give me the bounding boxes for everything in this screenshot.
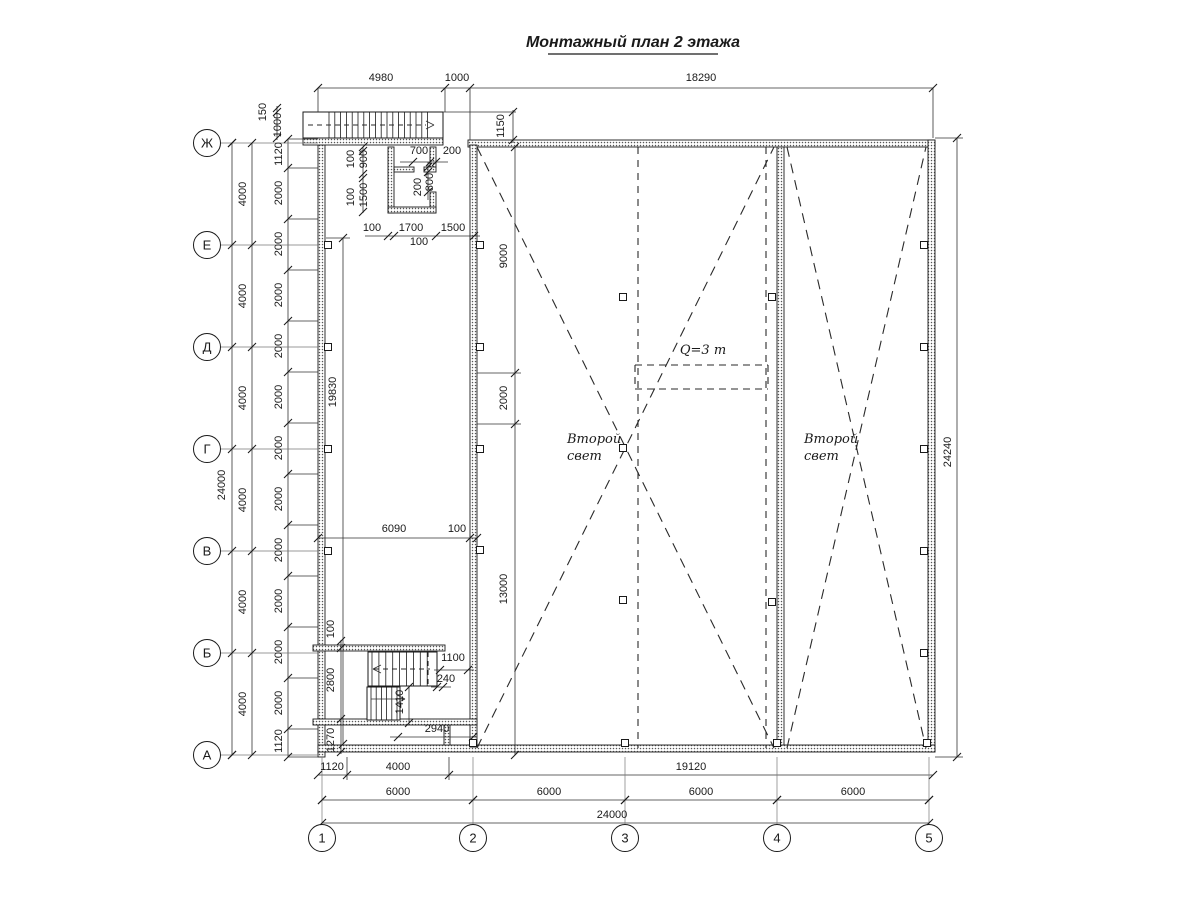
dimension-label: 6000 xyxy=(841,786,865,798)
dimension-label: 2000 xyxy=(273,283,285,307)
dimension-label: 2000 xyxy=(273,181,285,205)
dimension-label: 1500 xyxy=(441,222,465,234)
dimension-label: 6000 xyxy=(689,786,713,798)
dimension-label: 800 xyxy=(424,173,436,191)
column-marker xyxy=(477,242,484,249)
dimension-label: 1270 xyxy=(325,728,337,752)
dimension-label: 24000 xyxy=(597,809,628,821)
wall xyxy=(303,138,443,145)
axis-bubble-row-label: Б xyxy=(203,646,212,661)
column-marker xyxy=(921,344,928,351)
column-marker xyxy=(477,344,484,351)
axis-bubble-row-label: Д xyxy=(203,340,212,355)
column-marker xyxy=(470,740,477,747)
text-layer: 4980100018290150100011502400040004000400… xyxy=(216,34,954,821)
dimension-label: 1700 xyxy=(399,222,423,234)
dimension-label: 1000 xyxy=(272,113,284,137)
dimension-label: 240 xyxy=(437,673,455,685)
column-marker xyxy=(325,344,332,351)
dimension-label: 6000 xyxy=(386,786,410,798)
dimension-label: 2000 xyxy=(273,691,285,715)
axis-bubbles: ЖЕДГВБА12345 xyxy=(194,130,943,852)
column-marker xyxy=(924,740,931,747)
dimension-label: 2000 xyxy=(273,640,285,664)
column-marker xyxy=(325,548,332,555)
wall xyxy=(318,140,325,757)
dimension-label: 18290 xyxy=(686,72,717,84)
wall xyxy=(470,145,477,747)
dimension-label: 1410 xyxy=(394,690,406,714)
axis-bubble-row-label: Ж xyxy=(201,136,213,151)
column-marker xyxy=(769,599,776,606)
dimension-label: 1100 xyxy=(441,652,465,664)
plan-canvas: ЖЕДГВБА12345 498010001829015010001150240… xyxy=(0,0,1200,900)
wall xyxy=(313,645,445,651)
column-marker xyxy=(774,740,781,747)
dimension-label: 4000 xyxy=(386,761,410,773)
dimension-label: 4000 xyxy=(237,284,249,308)
dimension-label: 2800 xyxy=(325,668,337,692)
dimension-label: 2000 xyxy=(273,538,285,562)
column-marker xyxy=(477,547,484,554)
dimension-label: 19120 xyxy=(676,761,707,773)
dimension-label: 2000 xyxy=(273,334,285,358)
dimension-label: 100 xyxy=(448,523,466,535)
dimension-label: 1000 xyxy=(445,72,469,84)
dimension-label: 4000 xyxy=(237,590,249,614)
axis-bubble-row-label: В xyxy=(203,544,212,559)
dimension-label: 100 xyxy=(345,188,357,206)
dimension-label: 100 xyxy=(410,236,428,248)
wall xyxy=(928,140,935,752)
dimension-label: 6090 xyxy=(382,523,406,535)
column-marker xyxy=(477,446,484,453)
wall xyxy=(394,167,414,172)
axis-bubble-col-label: 1 xyxy=(318,831,325,846)
dimension-label: 1120 xyxy=(273,142,285,166)
axis-bubble-row-label: А xyxy=(203,748,212,763)
column-marker xyxy=(921,446,928,453)
column-marker xyxy=(325,446,332,453)
column-marker xyxy=(921,548,928,555)
axis-bubble-col-label: 2 xyxy=(469,831,476,846)
dimension-label: 9000 xyxy=(498,244,510,268)
axis-bubble-row-label: Е xyxy=(203,238,212,253)
dimension-label: 24000 xyxy=(216,470,228,501)
page-title: Монтажный план 2 этажа xyxy=(526,34,740,51)
dimension-label: 19830 xyxy=(327,377,339,408)
dimension-label: 13000 xyxy=(498,574,510,605)
dimension-label: 100 xyxy=(363,222,381,234)
axis-bubble-row-label: Г xyxy=(203,442,210,457)
column-marker xyxy=(620,597,627,604)
annotation-second-light: Второй xyxy=(566,432,621,447)
axis-bubble-col-label: 4 xyxy=(773,831,780,846)
dimension-label: 2000 xyxy=(273,589,285,613)
dimension-label: 4980 xyxy=(369,72,393,84)
wall xyxy=(388,207,436,213)
dimension-label: 2000 xyxy=(273,436,285,460)
dimension-label: 4000 xyxy=(237,182,249,206)
column-marker xyxy=(769,294,776,301)
floor-plan-drawing: ЖЕДГВБА12345 498010001829015010001150240… xyxy=(0,0,1200,900)
dimension-label: 150 xyxy=(257,103,269,121)
dimension-label: 2000 xyxy=(273,487,285,511)
wall xyxy=(777,147,784,745)
wall xyxy=(388,147,394,213)
dimension-label: 4000 xyxy=(237,488,249,512)
dimension-label: 2000 xyxy=(273,232,285,256)
dimension-label: 1120 xyxy=(320,761,344,773)
dimension-label: 1150 xyxy=(495,114,507,138)
annotation-second-light: свет xyxy=(567,449,602,464)
dimension-label: 4000 xyxy=(237,386,249,410)
annotation-second-light: Второй xyxy=(803,432,858,447)
column-marker xyxy=(620,294,627,301)
column-marker xyxy=(622,740,629,747)
dimension-label: 2000 xyxy=(498,386,510,410)
dimension-label: 100 xyxy=(325,620,337,638)
column-marker xyxy=(325,242,332,249)
dimension-label: 1500 xyxy=(358,183,370,207)
column-marker xyxy=(921,650,928,657)
annotation-crane-capacity: Q=3 т xyxy=(680,343,726,358)
dimension-label: 2000 xyxy=(273,385,285,409)
annotation-second-light: свет xyxy=(804,449,839,464)
dimension-label: 2940 xyxy=(425,723,449,735)
wall xyxy=(468,140,935,147)
axis-bubble-col-label: 5 xyxy=(925,831,932,846)
dimension-label: 700 xyxy=(410,145,428,157)
dimension-label: 4000 xyxy=(237,692,249,716)
dimension-label: 200 xyxy=(412,178,424,196)
column-marker xyxy=(921,242,928,249)
dimension-label: 24240 xyxy=(942,437,954,468)
dimension-label: 6000 xyxy=(537,786,561,798)
axis-bubble-col-label: 3 xyxy=(621,831,628,846)
dimension-label: 900 xyxy=(358,150,370,168)
dimension-label: 200 xyxy=(443,145,461,157)
dimension-label: 100 xyxy=(345,150,357,168)
dimension-label: 1120 xyxy=(273,729,285,753)
